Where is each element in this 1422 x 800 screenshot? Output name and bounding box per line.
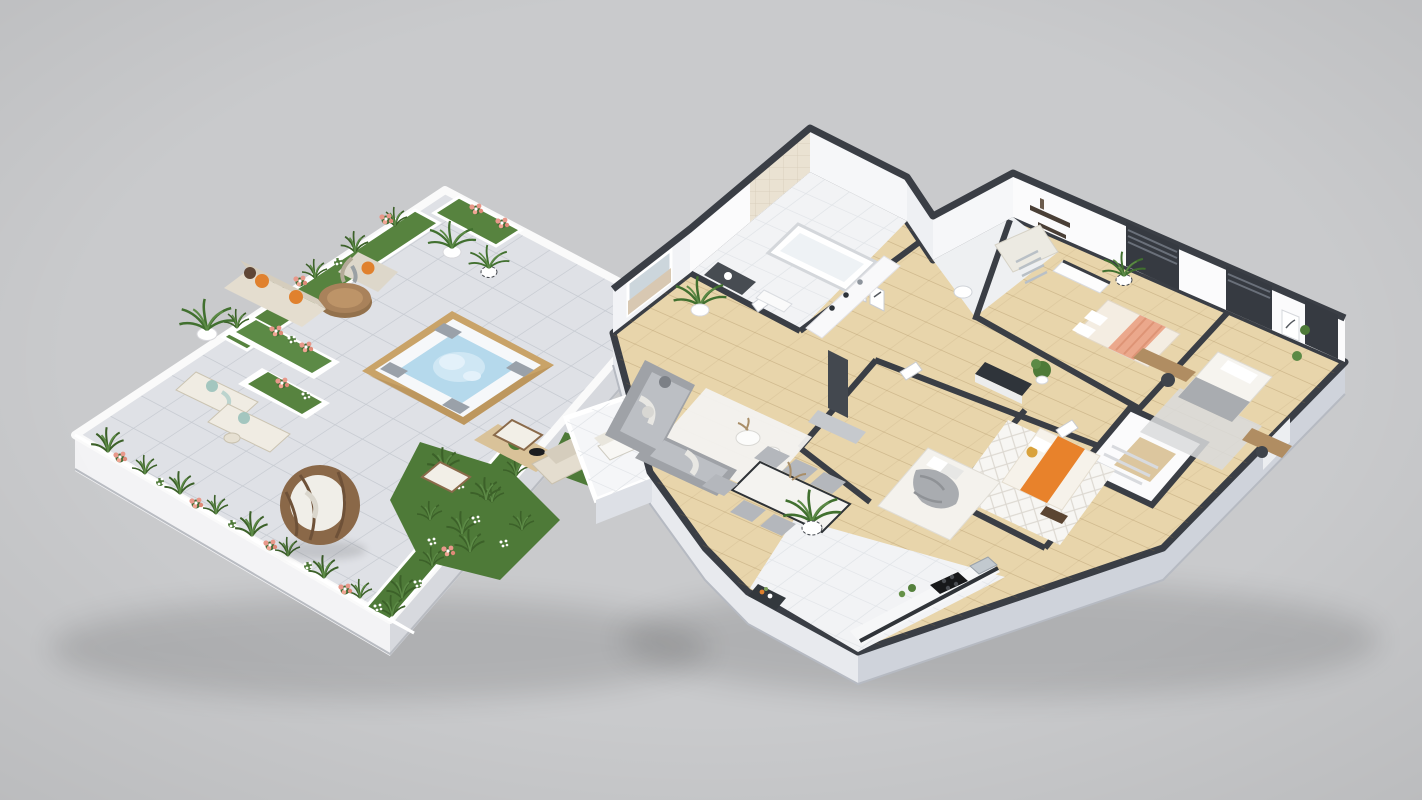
vignette <box>0 0 1422 800</box>
floorplan-render <box>0 0 1422 800</box>
screenshot-canvas <box>0 0 1422 800</box>
